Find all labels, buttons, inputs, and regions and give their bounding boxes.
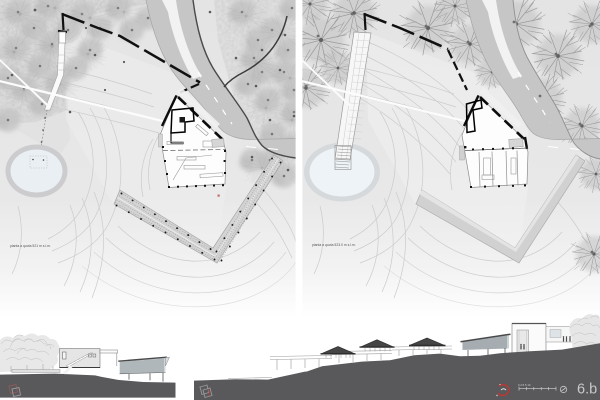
svg-text:6.b: 6.b [577,382,597,398]
svg-text:0 2.5 5 10: 0 2.5 5 10 [518,383,531,387]
svg-text:pianta a quota 521 m s.l.m.: pianta a quota 521 m s.l.m. [10,244,51,248]
svg-text:pianta a quota 523.0 m s.l.m.: pianta a quota 523.0 m s.l.m. [312,243,356,247]
